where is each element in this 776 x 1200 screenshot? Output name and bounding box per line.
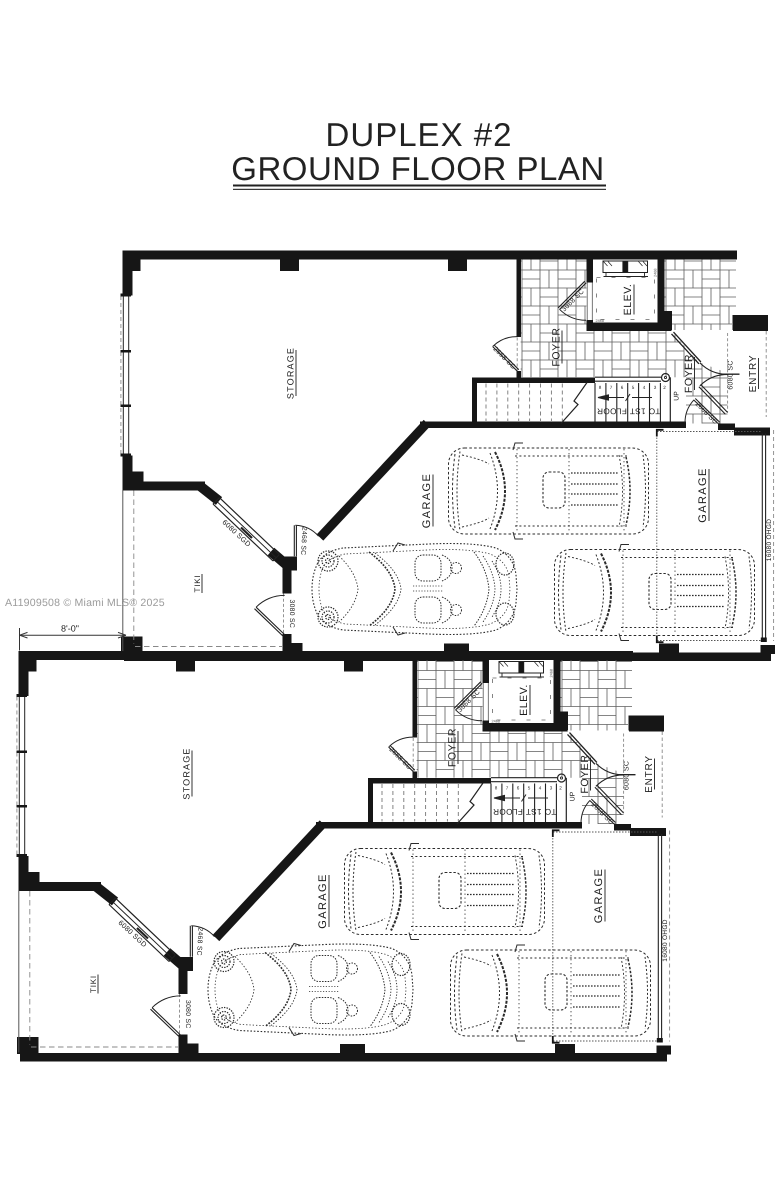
svg-text:DUPLEX #2: DUPLEX #2 xyxy=(326,116,513,153)
svg-text:8'-0": 8'-0" xyxy=(61,624,79,634)
svg-text:GROUND FLOOR PLAN: GROUND FLOOR PLAN xyxy=(231,150,604,187)
svg-text:A11909508 © Miami MLS© 2025: A11909508 © Miami MLS© 2025 xyxy=(5,597,165,609)
